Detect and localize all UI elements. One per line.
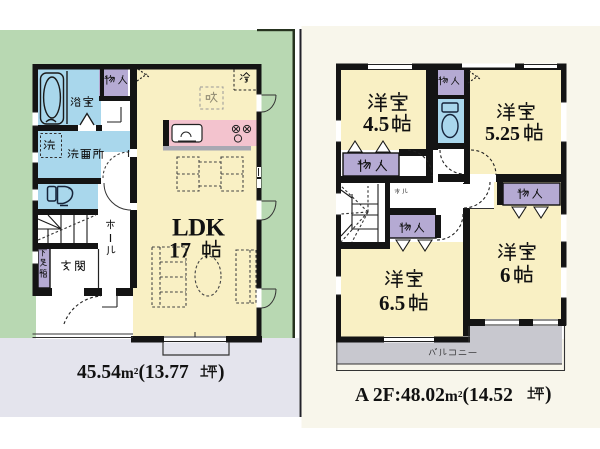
- svg-text:6.5: 6.5: [379, 291, 405, 315]
- svg-text:): ): [218, 362, 225, 383]
- svg-text:6: 6: [500, 263, 511, 287]
- svg-text:5.25: 5.25: [485, 123, 520, 145]
- svg-text:): ): [545, 384, 552, 405]
- svg-text:4.5: 4.5: [363, 112, 389, 136]
- svg-text:45.54m²(13.77: 45.54m²(13.77: [77, 362, 189, 383]
- svg-text:17: 17: [169, 238, 191, 263]
- svg-text:A 2F:48.02m²(14.52: A 2F:48.02m²(14.52: [355, 385, 513, 406]
